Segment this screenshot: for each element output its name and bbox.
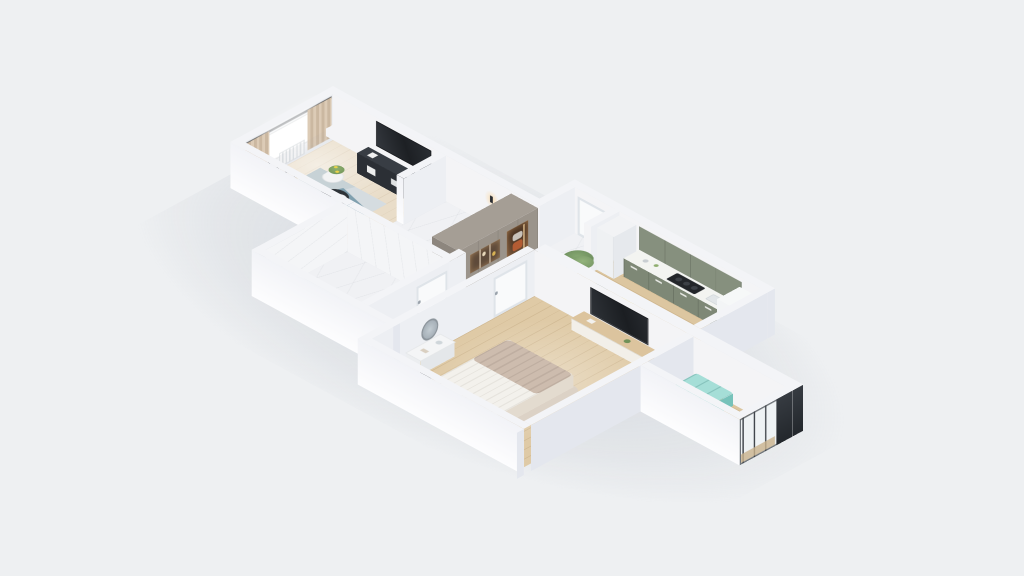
burner-icon: [674, 277, 684, 282]
wall-cap-divider: [397, 175, 404, 225]
wall-cap-bedroom-south-east: [517, 429, 524, 479]
console-plant: [622, 339, 632, 344]
burner-icon: [682, 281, 692, 286]
console-decor: [586, 319, 596, 324]
burner-icon: [689, 285, 699, 290]
apartment-3d-render: [0, 0, 1024, 576]
console-decor: [367, 152, 378, 158]
shelf-decor: [482, 251, 486, 257]
desk-decor: [420, 348, 429, 353]
counter-decor: [641, 259, 649, 264]
cabinet-handle: [705, 306, 711, 311]
plant-flower: [333, 166, 339, 169]
counter-decor: [653, 264, 660, 268]
desk-decor: [434, 340, 444, 345]
cabinet-handle: [631, 266, 637, 271]
console-books: [367, 165, 375, 176]
wall-cap-kitchen-north-east: [768, 288, 775, 338]
shelf-decor: [492, 250, 496, 256]
plant-flower: [334, 170, 340, 173]
shelf-line: [490, 244, 491, 263]
cabinet-handle: [680, 293, 686, 298]
cabinet-handle: [655, 279, 661, 284]
shelf-line: [480, 249, 481, 268]
curtain-left: [308, 97, 332, 150]
